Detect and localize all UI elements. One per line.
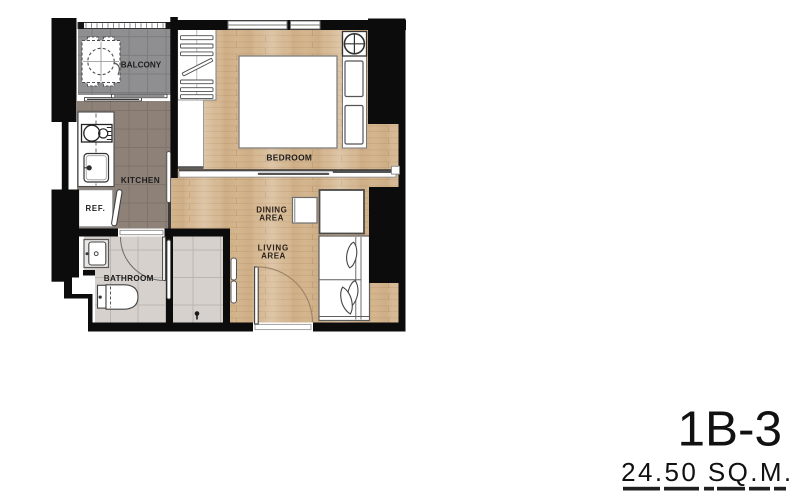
svg-text:BEDROOM: BEDROOM <box>266 153 312 163</box>
svg-text:AREA: AREA <box>259 213 284 222</box>
svg-text:BATHROOM: BATHROOM <box>104 274 154 283</box>
svg-text:KITCHEN: KITCHEN <box>121 176 160 185</box>
svg-text:REF.: REF. <box>85 204 105 213</box>
svg-text:24.50 SQ.M.: 24.50 SQ.M. <box>621 457 793 487</box>
svg-text:1B-3: 1B-3 <box>677 401 782 456</box>
svg-text:AREA: AREA <box>261 252 286 261</box>
svg-text:BALCONY: BALCONY <box>121 60 162 69</box>
